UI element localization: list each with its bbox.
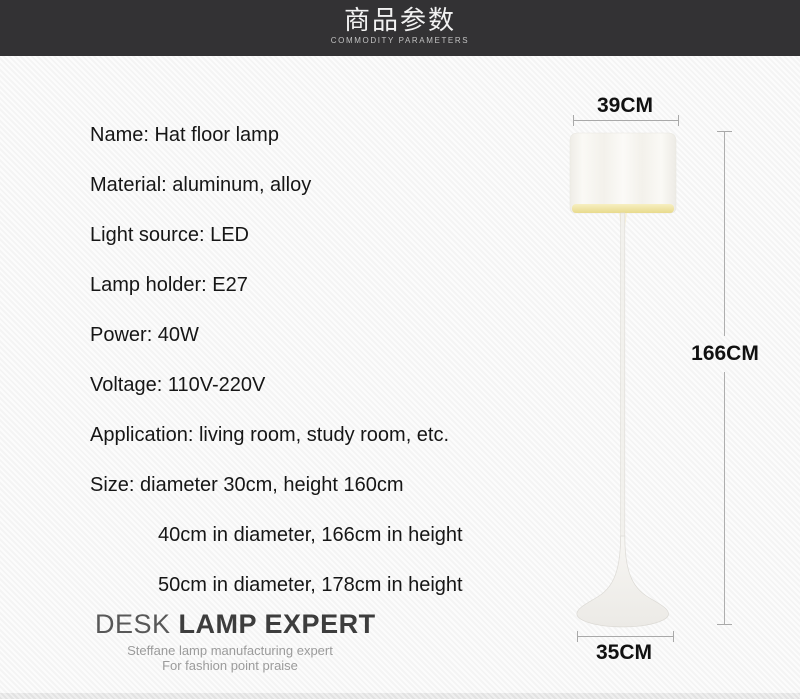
brand-tagline-1: Steffane lamp manufacturing expert (95, 643, 365, 658)
spec-size-option-2: 40cm in diameter, 166cm in height (158, 524, 463, 546)
spec-material: Material: aluminum, alloy (90, 174, 311, 196)
product-parameters-page: 商品参数 COMMODITY PARAMETERS Name: Hat floo… (0, 0, 800, 699)
spec-application: Application: living room, study room, et… (90, 424, 449, 446)
shade-width-dimension-line (573, 115, 679, 126)
base-width-label: 35CM (572, 641, 676, 665)
spec-size: Size: diameter 30cm, height 160cm (90, 474, 404, 496)
height-dimension-line-upper (724, 132, 725, 336)
floor-lamp-illustration (553, 128, 693, 630)
lamp-shade (570, 133, 676, 213)
spec-size-option-3: 50cm in diameter, 178cm in height (158, 574, 463, 596)
page-subtitle: COMMODITY PARAMETERS (0, 35, 800, 47)
header-bar: 商品参数 COMMODITY PARAMETERS (0, 0, 800, 56)
lamp-pole (621, 213, 625, 540)
brand-name: DESK LAMP EXPERT (95, 609, 365, 639)
brand-tagline-2: For fashion point praise (95, 658, 365, 673)
lamp-glow (572, 204, 674, 213)
spec-name: Name: Hat floor lamp (90, 124, 279, 146)
bottom-edge-band (0, 693, 800, 699)
lamp-base (577, 536, 669, 627)
brand-name-main: LAMP EXPERT (179, 609, 376, 639)
height-dimension-bottom-tick (717, 624, 732, 625)
height-dimension-line-lower (724, 372, 725, 624)
spec-voltage: Voltage: 110V-220V (90, 374, 265, 396)
brand-name-prefix: DESK (95, 609, 179, 639)
spec-light-source: Light source: LED (90, 224, 249, 246)
spec-lamp-holder: Lamp holder: E27 (90, 274, 248, 296)
spec-power: Power: 40W (90, 324, 199, 346)
page-title: 商品参数 (0, 0, 800, 35)
total-height-label: 166CM (688, 342, 762, 366)
brand-logo: DESK LAMP EXPERT Steffane lamp manufactu… (95, 609, 365, 673)
